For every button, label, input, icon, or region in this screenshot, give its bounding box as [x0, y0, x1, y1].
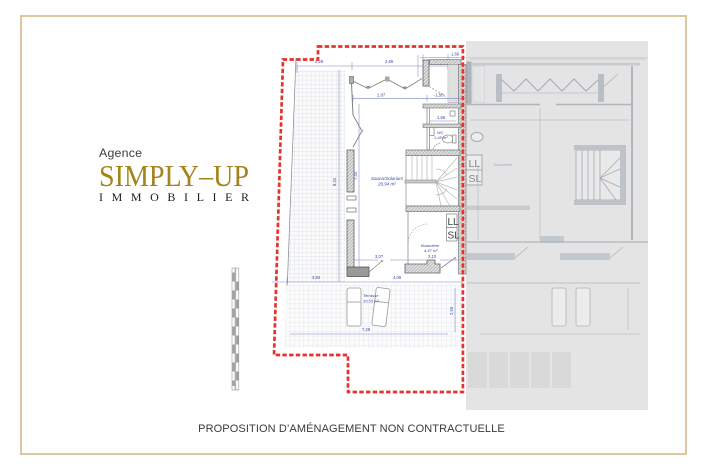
svg-text:3,07: 3,07: [375, 254, 384, 259]
svg-text:8,24: 8,24: [332, 177, 337, 186]
svg-text:4,47 m²: 4,47 m²: [424, 248, 438, 253]
svg-text:7,29: 7,29: [362, 327, 371, 332]
svg-text:2,10: 2,10: [428, 254, 437, 259]
svg-text:2,87: 2,87: [377, 93, 386, 98]
svg-text:1,45 m²: 1,45 m²: [434, 135, 448, 140]
svg-text:2,66: 2,66: [385, 59, 394, 64]
svg-text:-1,50: -1,50: [434, 93, 444, 98]
svg-text:7,44: 7,44: [353, 171, 358, 180]
svg-text:LL: LL: [448, 217, 460, 228]
svg-text:LL: LL: [469, 158, 481, 170]
svg-text:1,66: 1,66: [451, 52, 460, 57]
svg-text:2,50: 2,50: [449, 306, 454, 315]
svg-text:20,94 m²: 20,94 m²: [377, 182, 396, 187]
svg-text:SL: SL: [469, 173, 482, 185]
svg-text:SL: SL: [448, 231, 461, 242]
svg-text:Terrasse: Terrasse: [363, 293, 379, 298]
svg-text:3,92: 3,92: [312, 275, 321, 280]
svg-text:10,53 m²: 10,53 m²: [363, 299, 379, 304]
svg-text:4,06: 4,06: [393, 275, 402, 280]
svg-text:1,66: 1,66: [437, 115, 446, 120]
svg-text:Buanderie: Buanderie: [494, 162, 513, 167]
svg-text:Sauna/Solarium: Sauna/Solarium: [371, 176, 403, 181]
